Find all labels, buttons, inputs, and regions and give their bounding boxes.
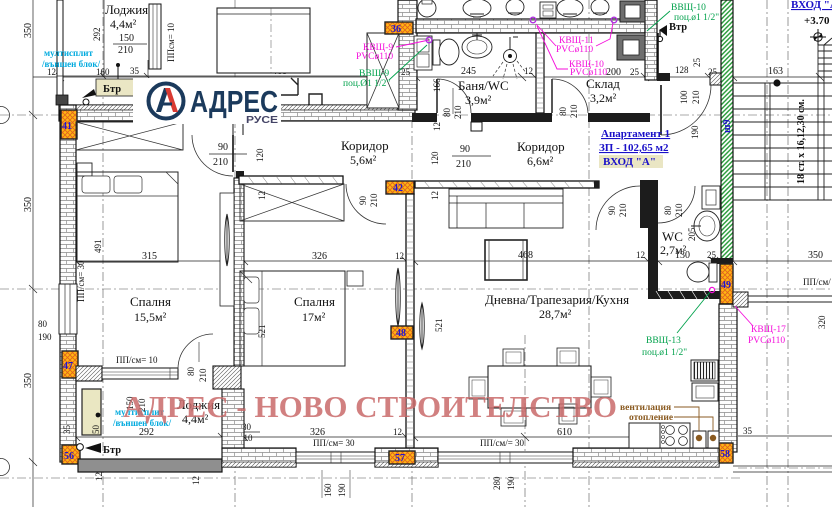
svg-text:90: 90 [218,142,228,153]
svg-text:610: 610 [557,427,572,438]
svg-text:Коридор: Коридор [341,138,389,153]
svg-text:160: 160 [323,483,333,497]
svg-text:50: 50 [91,425,101,435]
svg-text:80: 80 [38,319,48,329]
svg-text:поц.ø1 1/2": поц.ø1 1/2" [674,13,719,23]
svg-text:35: 35 [130,66,140,76]
svg-text:90: 90 [460,144,470,155]
svg-text:491: 491 [93,240,103,254]
svg-text:ПП/см= 10: ПП/см= 10 [116,355,158,365]
svg-text:42: 42 [393,183,403,194]
svg-text:100: 100 [679,90,689,104]
svg-text:Спалня: Спалня [130,294,171,309]
svg-text:210: 210 [618,203,628,217]
svg-text:12: 12 [432,122,442,131]
svg-text:468: 468 [518,250,533,261]
svg-text:17м²: 17м² [302,310,326,324]
svg-text:ВХОД "А": ВХОД "А" [791,0,832,11]
svg-text:ВВЩ-9: ВВЩ-9 [359,69,389,79]
svg-text:Апартамент 1: Апартамент 1 [601,128,670,140]
svg-text:PVCø110: PVCø110 [748,336,785,346]
svg-text:ППсм= 10: ППсм= 10 [166,22,176,62]
svg-text:Склад: Склад [586,76,620,91]
svg-text:210: 210 [213,157,228,168]
svg-text:35: 35 [743,426,753,436]
svg-text:315: 315 [142,251,157,262]
svg-text:6,6м²: 6,6м² [527,154,554,168]
svg-text:48: 48 [396,328,406,339]
svg-text:12: 12 [395,251,404,261]
svg-text:58: 58 [720,449,730,460]
svg-text:292: 292 [139,427,154,438]
svg-text:18 ст. х 16,12,30 см.: 18 ст. х 16,12,30 см. [796,99,807,184]
svg-text:56: 56 [64,451,74,462]
svg-text:3,2м²: 3,2м² [590,91,617,105]
svg-text:210: 210 [569,104,579,118]
svg-text:12: 12 [524,66,533,76]
svg-text:210: 210 [453,105,463,119]
svg-text:12: 12 [393,427,402,437]
svg-text:80: 80 [663,206,673,216]
svg-text:292: 292 [92,28,102,42]
svg-text:КВЩ-17: КВЩ-17 [751,325,786,335]
svg-text:35: 35 [62,425,72,435]
svg-text:ПП/см/: ПП/см/ [803,277,831,287]
svg-text:ш9: ш9 [722,120,733,133]
svg-text:12: 12 [430,191,440,200]
svg-text:PVCø110: PVCø110 [356,52,393,62]
svg-text:2,7м²: 2,7м² [660,243,687,257]
svg-text:отопление: отопление [629,413,673,423]
svg-text:Бтр: Бтр [103,84,121,95]
svg-text:ВВЩ-10: ВВЩ-10 [671,3,706,13]
svg-text:ЗП - 102,65 м2: ЗП - 102,65 м2 [599,142,669,154]
svg-text:ВВЩ-13: ВВЩ-13 [646,336,681,346]
svg-text:90: 90 [607,206,617,216]
svg-text:350: 350 [808,250,823,261]
svg-text:РУСЕ: РУСЕ [246,114,278,126]
svg-text:12: 12 [636,250,645,260]
svg-text:PVCø110: PVCø110 [556,45,593,55]
svg-text:41: 41 [62,121,72,132]
svg-text:521: 521 [434,319,444,333]
svg-text:49: 49 [721,280,731,291]
svg-text:12: 12 [257,191,267,200]
svg-text:350: 350 [23,197,34,212]
svg-text:25: 25 [692,58,702,68]
svg-text:ПП/см= 30: ПП/см= 30 [313,438,355,448]
svg-text:245: 245 [461,66,476,77]
svg-text:поц.ø1 1/2": поц.ø1 1/2" [642,348,687,358]
svg-text:ПП/см= 30: ПП/см= 30 [76,260,86,302]
svg-text:320: 320 [817,315,827,329]
svg-text:+3.70: +3.70 [804,15,830,27]
svg-text:Спалня: Спалня [294,294,335,309]
svg-text:3,9м²: 3,9м² [465,93,492,107]
svg-text:вентилация: вентилация [620,403,671,413]
svg-text:PVCø110: PVCø110 [570,68,607,78]
svg-text:28,7м²: 28,7м² [539,307,572,321]
svg-text:5,6м²: 5,6м² [350,153,377,167]
svg-text:210: 210 [198,368,208,382]
svg-text:Втр: Втр [669,22,687,33]
svg-text:163: 163 [768,66,783,77]
svg-text:15,5м²: 15,5м² [134,310,167,324]
svg-text:190: 190 [506,476,516,490]
svg-text:Коридор: Коридор [517,139,565,154]
svg-text:АДРЕС - НОВО СТРОИТЕЛСТВО: АДРЕС - НОВО СТРОИТЕЛСТВО [123,389,617,424]
svg-text:25: 25 [630,67,640,77]
svg-text:190: 190 [337,483,347,497]
svg-text:Бтр: Бтр [103,445,121,456]
svg-text:12: 12 [191,476,201,485]
svg-text:210: 210 [369,193,379,207]
svg-text:280: 280 [492,476,502,490]
svg-text:210: 210 [691,90,701,104]
svg-text:Лоджия: Лоджия [105,2,148,17]
svg-text:25: 25 [401,67,411,77]
svg-text:326: 326 [312,251,327,262]
svg-text:WC: WC [662,229,683,244]
svg-text:210: 210 [456,159,471,170]
svg-text:36: 36 [391,24,401,35]
svg-text:90: 90 [358,196,368,206]
svg-text:210: 210 [118,45,133,56]
svg-text:150: 150 [119,33,134,44]
svg-text:210: 210 [674,203,684,217]
svg-text:/външен блок/: /външен блок/ [41,59,101,69]
svg-text:120: 120 [255,148,265,162]
svg-text:120: 120 [430,151,440,165]
svg-text:4,4м²: 4,4м² [110,17,137,31]
svg-text:190: 190 [38,332,52,342]
svg-text:поц.Ø1 1/2": поц.Ø1 1/2" [343,79,390,89]
svg-text:190: 190 [690,125,700,139]
svg-text:12: 12 [94,472,104,481]
svg-text:80: 80 [442,108,452,118]
svg-text:80: 80 [558,107,568,117]
svg-text:57: 57 [395,453,405,464]
svg-text:350: 350 [23,373,34,388]
svg-text:ПП/см/= 30: ПП/см/= 30 [480,438,525,448]
svg-text:47: 47 [63,361,73,372]
svg-text:350: 350 [23,23,34,38]
svg-text:128: 128 [675,65,689,75]
svg-text:мултисплит: мултисплит [44,48,93,58]
svg-text:ВХОД "А": ВХОД "А" [603,156,656,168]
svg-text:Дневна/Трапезария/Кухня: Дневна/Трапезария/Кухня [485,292,629,307]
svg-text:80: 80 [186,367,196,377]
svg-text:Баня/WC: Баня/WC [458,78,509,93]
svg-text:326: 326 [310,427,325,438]
